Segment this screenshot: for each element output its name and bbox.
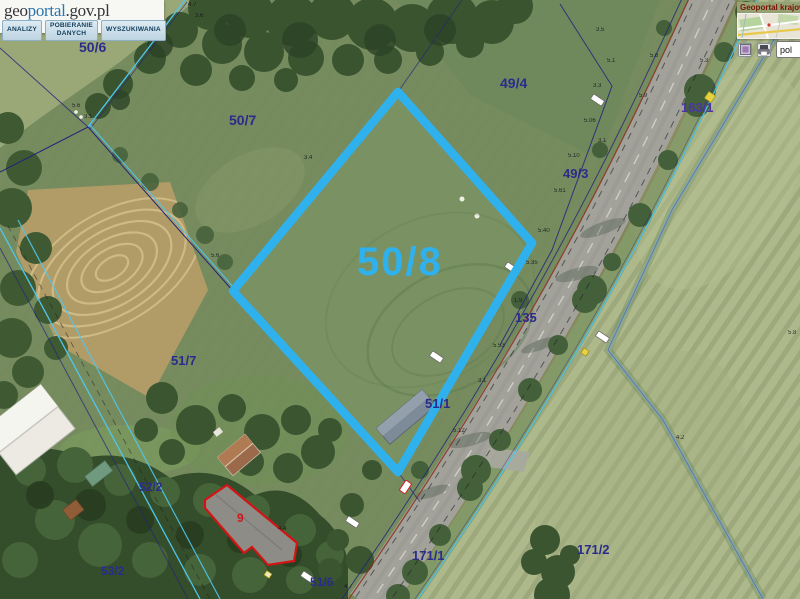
- menu-wyszukiwania-button[interactable]: WYSZUKIWANIA: [101, 20, 166, 41]
- language-select[interactable]: pol ▼: [776, 41, 800, 58]
- header-panel: geoportal.gov.pl ANALIZY POBIERANIE DANY…: [0, 0, 164, 33]
- main-menu: ANALIZY POBIERANIE DANYCH WYSZUKIWANIA: [2, 20, 166, 41]
- minimap-thumbnail: [738, 14, 800, 38]
- overview-controls: pol ▼: [738, 41, 800, 58]
- composition-button[interactable]: [738, 43, 752, 57]
- geoportal-logo[interactable]: geoportal.gov.pl: [4, 1, 110, 21]
- minimap-position-dot: [767, 23, 770, 26]
- composition-icon: [740, 44, 751, 55]
- menu-pobieranie-danych-button[interactable]: POBIERANIE DANYCH: [45, 20, 98, 41]
- aerial-map-artwork: [0, 0, 800, 599]
- overview-widget: Geoportal krajowy: [737, 2, 800, 39]
- map-canvas[interactable]: 50/650/749/449/3163/113551/751/152/253/2…: [0, 0, 800, 599]
- language-value: pol: [780, 45, 792, 55]
- logo-part-portal: portal: [28, 1, 66, 20]
- overview-widget-title: Geoportal krajowy: [737, 2, 800, 13]
- logo-part-suffix: .gov.pl: [66, 1, 110, 20]
- menu-analizy-button[interactable]: ANALIZY: [2, 20, 42, 41]
- print-icon: [758, 44, 770, 56]
- logo-part-geo: geo: [4, 1, 28, 20]
- print-button[interactable]: [757, 43, 771, 57]
- overview-minimap[interactable]: [737, 13, 800, 39]
